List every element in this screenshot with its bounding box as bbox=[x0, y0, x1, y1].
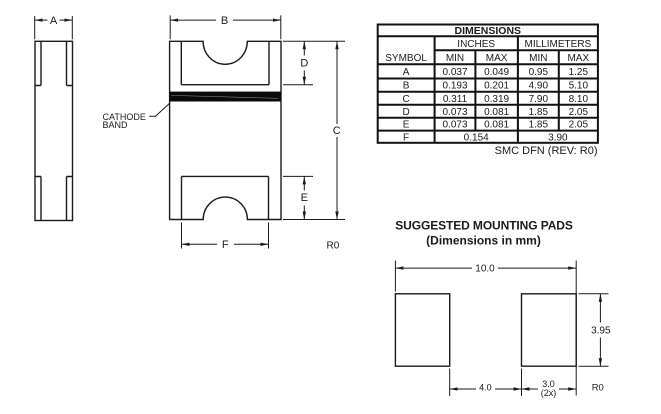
svg-text:(Dimensions in mm): (Dimensions in mm) bbox=[426, 234, 541, 248]
svg-text:F: F bbox=[222, 239, 229, 251]
svg-text:10.0: 10.0 bbox=[475, 264, 495, 275]
svg-text:0.95: 0.95 bbox=[529, 67, 549, 78]
svg-text:SUGGESTED MOUNTING PADS: SUGGESTED MOUNTING PADS bbox=[395, 218, 573, 232]
svg-text:1.85: 1.85 bbox=[529, 120, 549, 131]
svg-text:D: D bbox=[402, 107, 409, 118]
svg-text:0.073: 0.073 bbox=[442, 120, 467, 131]
svg-text:B: B bbox=[221, 15, 228, 27]
svg-text:0.319: 0.319 bbox=[484, 94, 509, 105]
svg-text:1.25: 1.25 bbox=[569, 67, 589, 78]
svg-text:0.154: 0.154 bbox=[464, 132, 489, 143]
svg-text:R0: R0 bbox=[592, 383, 604, 394]
svg-text:MIN: MIN bbox=[529, 53, 547, 64]
svg-text:INCHES: INCHES bbox=[457, 39, 495, 50]
svg-text:3.90: 3.90 bbox=[548, 132, 568, 143]
svg-text:C: C bbox=[402, 94, 409, 105]
svg-text:0.311: 0.311 bbox=[443, 94, 468, 105]
svg-text:0.073: 0.073 bbox=[442, 107, 467, 118]
svg-text:D: D bbox=[300, 58, 308, 70]
svg-text:1.85: 1.85 bbox=[529, 107, 549, 118]
svg-text:8.10: 8.10 bbox=[569, 94, 589, 105]
svg-text:E: E bbox=[403, 120, 410, 131]
svg-text:MAX: MAX bbox=[567, 53, 589, 64]
svg-text:SMC DFN (REV: R0): SMC DFN (REV: R0) bbox=[495, 145, 598, 157]
svg-text:E: E bbox=[301, 192, 308, 204]
svg-text:F: F bbox=[403, 132, 409, 143]
svg-text:BAND: BAND bbox=[103, 120, 129, 130]
svg-text:SYMBOL: SYMBOL bbox=[385, 53, 427, 64]
svg-text:2.05: 2.05 bbox=[569, 107, 589, 118]
svg-text:MILLIMETERS: MILLIMETERS bbox=[525, 39, 592, 50]
svg-text:C: C bbox=[333, 125, 341, 137]
svg-text:A: A bbox=[50, 15, 58, 27]
svg-text:0.081: 0.081 bbox=[484, 120, 509, 131]
svg-text:4.0: 4.0 bbox=[479, 382, 492, 392]
svg-text:DIMENSIONS: DIMENSIONS bbox=[455, 25, 522, 37]
svg-text:7.90: 7.90 bbox=[529, 94, 549, 105]
svg-text:(2x): (2x) bbox=[541, 388, 557, 398]
svg-text:5.10: 5.10 bbox=[569, 81, 589, 92]
svg-text:4.90: 4.90 bbox=[529, 81, 549, 92]
svg-text:0.037: 0.037 bbox=[442, 67, 467, 78]
svg-text:0.049: 0.049 bbox=[484, 67, 509, 78]
svg-text:2.05: 2.05 bbox=[569, 120, 589, 131]
svg-text:0.201: 0.201 bbox=[484, 81, 509, 92]
svg-text:0.193: 0.193 bbox=[442, 81, 467, 92]
svg-text:MAX: MAX bbox=[486, 53, 508, 64]
svg-text:A: A bbox=[403, 67, 410, 78]
svg-text:0.081: 0.081 bbox=[484, 107, 509, 118]
svg-text:MIN: MIN bbox=[446, 53, 464, 64]
svg-text:3.95: 3.95 bbox=[591, 326, 611, 337]
svg-text:R0: R0 bbox=[327, 240, 340, 251]
svg-text:B: B bbox=[403, 81, 410, 92]
